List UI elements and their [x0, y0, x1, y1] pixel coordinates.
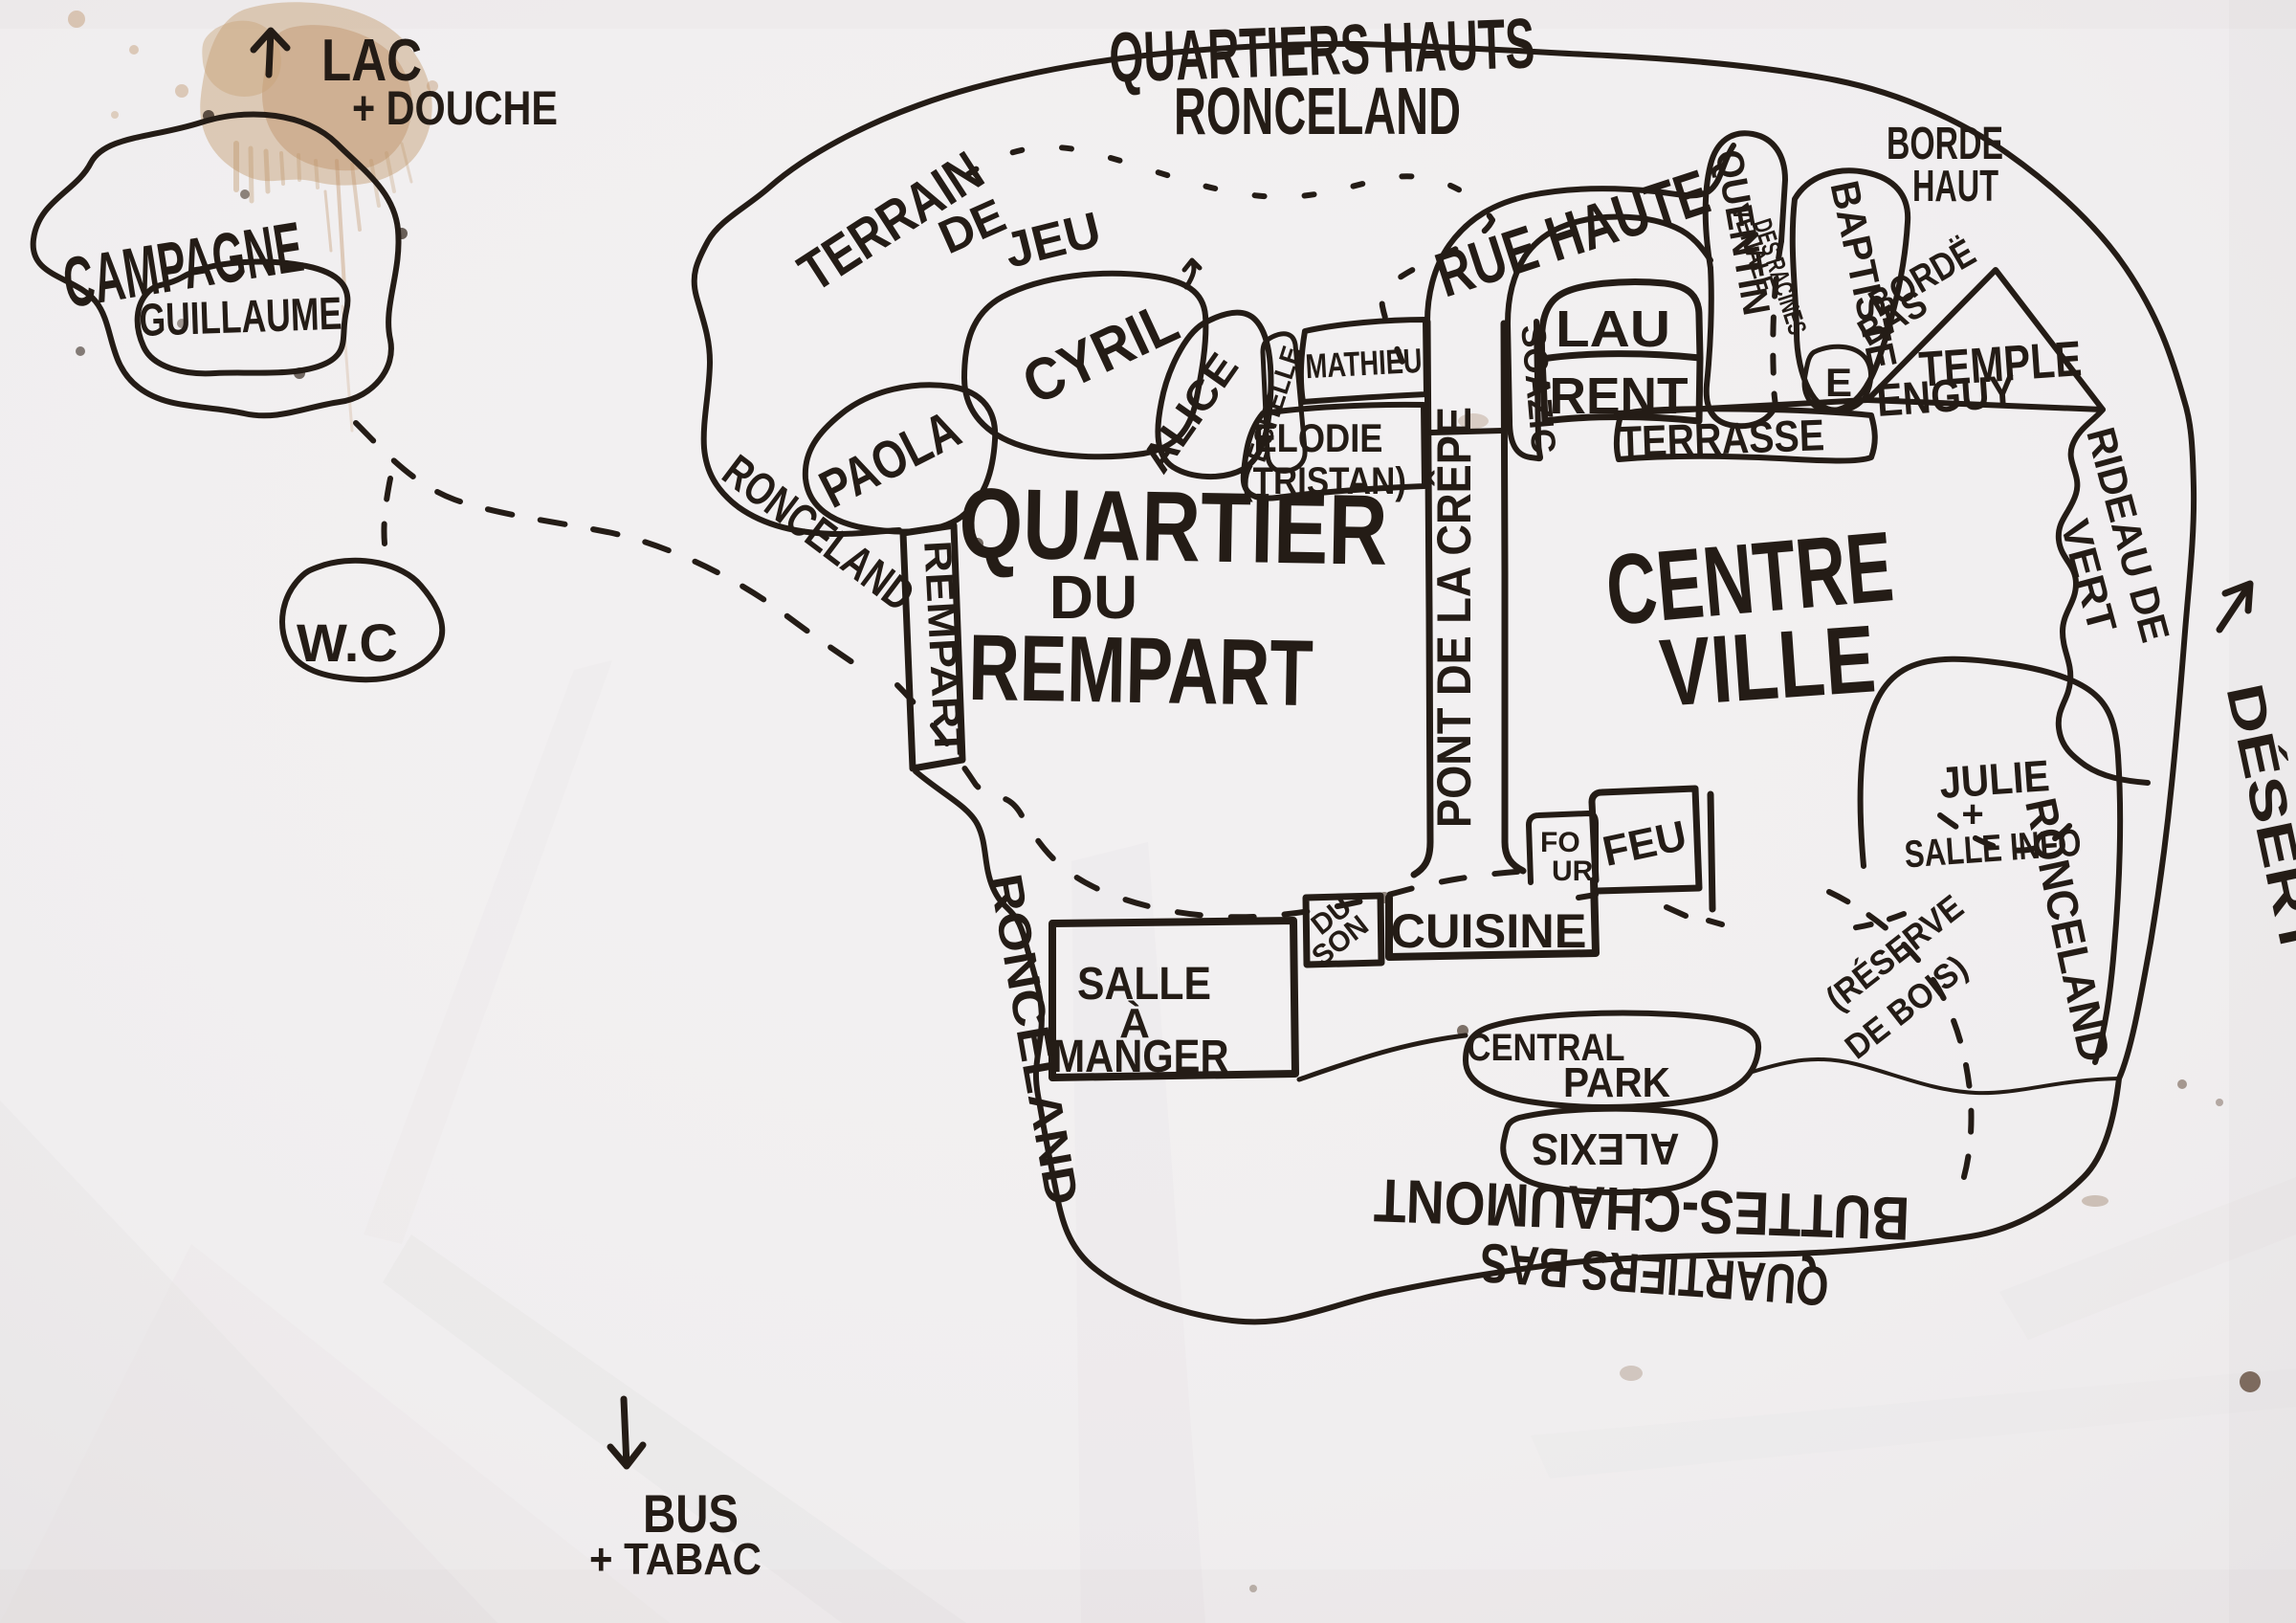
svg-text:E: E: [1825, 360, 1852, 405]
svg-text:LAU: LAU: [1556, 300, 1670, 358]
svg-text:TERRASSE: TERRASSE: [1618, 410, 1825, 466]
svg-text:JULIE: JULIE: [1938, 750, 2051, 808]
svg-text:+ DOUCHE: + DOUCHE: [352, 81, 558, 135]
svg-text:UR: UR: [1552, 856, 1594, 887]
svg-text:VILLE: VILLE: [1657, 605, 1879, 726]
svg-text:MANGER: MANGER: [1052, 1032, 1229, 1082]
svg-text:QUARTIER: QUARTIER: [958, 468, 1388, 587]
svg-text:PARK: PARK: [1563, 1059, 1670, 1106]
svg-text:ENGUY: ENGUY: [1875, 367, 2017, 427]
svg-text:ELODIE: ELODIE: [1254, 415, 1383, 460]
svg-text:RONCELAND: RONCELAND: [1174, 74, 1461, 148]
svg-text:ALEXIS: ALEXIS: [1532, 1124, 1680, 1174]
svg-text:HAUT: HAUT: [1912, 161, 1998, 211]
svg-text:+ TABAC: + TABAC: [589, 1534, 762, 1584]
svg-text:REMPART: REMPART: [968, 614, 1314, 725]
svg-text:CUISINE: CUISINE: [1391, 904, 1587, 958]
svg-text:FO: FO: [1540, 827, 1580, 858]
svg-text:PONT DE LA CRÊPE: PONT DE LA CRÊPE: [1427, 407, 1481, 828]
svg-text:MATHIEU: MATHIEU: [1304, 341, 1423, 386]
svg-text:GUILLAUME: GUILLAUME: [138, 289, 342, 346]
svg-text:W.C: W.C: [297, 612, 398, 673]
